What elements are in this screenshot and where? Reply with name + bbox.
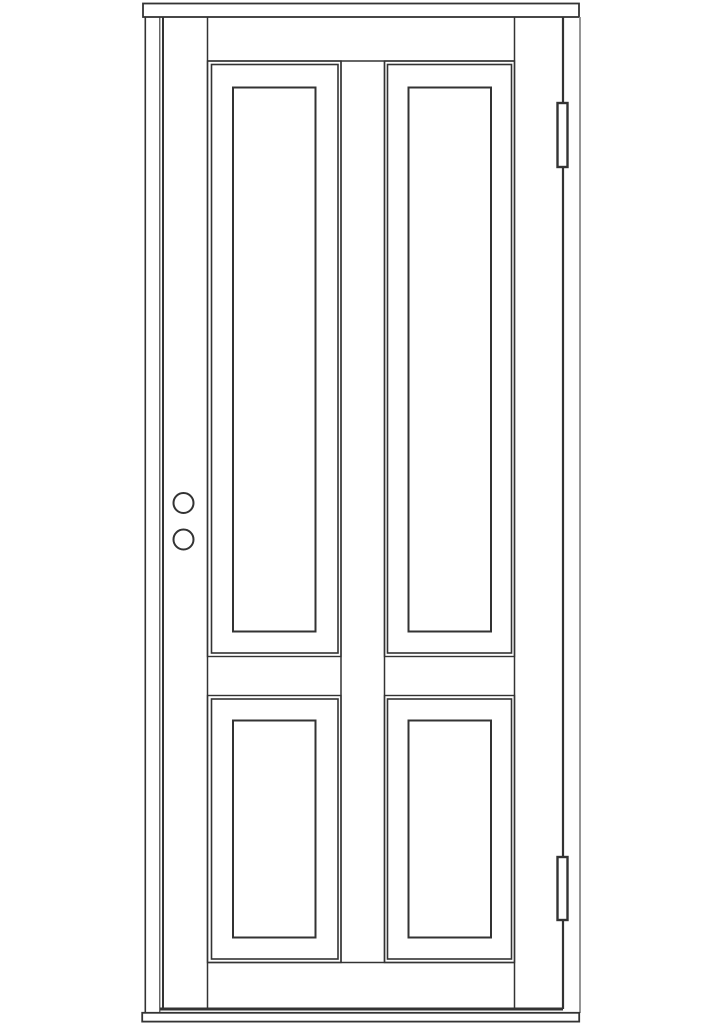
door-elevation-drawing <box>0 0 724 1024</box>
panel-upper-right <box>385 61 515 657</box>
panel-upper-right-field <box>409 88 492 632</box>
panel-lower-right <box>385 696 515 963</box>
panel-upper-left-opening <box>208 61 342 657</box>
frame-head-casing <box>143 4 579 18</box>
drawing-canvas <box>0 0 724 1024</box>
bore-hole-upper <box>174 493 194 513</box>
panel-lower-left-opening <box>208 696 342 963</box>
panel-upper-left <box>208 61 342 657</box>
bore-hole-lower <box>174 530 194 550</box>
panel-lower-right-field <box>409 721 492 938</box>
hinge-top <box>558 103 568 167</box>
panel-upper-right-molding <box>388 65 512 654</box>
panel-lower-right-opening <box>385 696 515 963</box>
panel-lower-right-molding <box>388 699 512 959</box>
panel-lower-left-field <box>233 721 316 938</box>
panel-upper-left-field <box>233 88 316 632</box>
hinge-bottom <box>558 857 568 920</box>
panel-lower-left-molding <box>212 699 339 959</box>
panel-lower-left <box>208 696 342 963</box>
threshold-sill <box>142 1013 579 1022</box>
panel-upper-left-molding <box>212 65 339 654</box>
panel-upper-right-opening <box>385 61 515 657</box>
